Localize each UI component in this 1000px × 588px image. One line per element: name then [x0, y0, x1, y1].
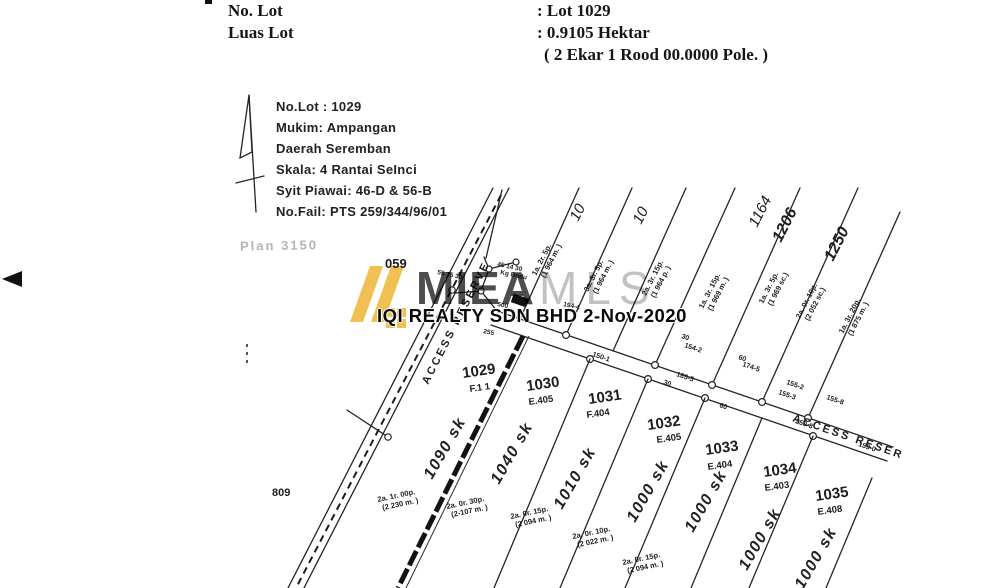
agency-date-stamp: IQI REALTY SDN BHD 2-Nov-2020 — [377, 305, 687, 327]
svg-text:185-5: 185-5 — [675, 371, 694, 383]
svg-text:55 15 30: 55 15 30 — [437, 269, 464, 281]
svg-text:10: 10 — [566, 201, 589, 224]
svg-text:E.408: E.408 — [817, 504, 843, 518]
svg-text:1031: 1031 — [587, 386, 622, 407]
svg-text:F.1 1: F.1 1 — [469, 381, 492, 395]
scanned-land-title-document: No. Lot : Lot 1029 Luas Lot : 0.9105 Hek… — [0, 0, 1000, 588]
svg-text:155-2: 155-2 — [785, 379, 804, 391]
svg-text:155-3: 155-3 — [777, 389, 796, 401]
svg-text:1000 sk: 1000 sk — [792, 524, 841, 588]
svg-text:155-8: 155-8 — [825, 394, 844, 406]
svg-text:1206: 1206 — [769, 205, 800, 245]
svg-text:1250: 1250 — [821, 224, 852, 264]
svg-text:F.404: F.404 — [586, 407, 611, 421]
svg-text:E.405: E.405 — [528, 394, 555, 408]
svg-text:30: 30 — [680, 333, 690, 342]
svg-text:1010 sk: 1010 sk — [551, 444, 600, 512]
svg-text:E.405: E.405 — [656, 432, 683, 446]
svg-text:60: 60 — [718, 402, 728, 411]
speckles — [246, 344, 248, 363]
upper-strip-numbers: 10 10 1164 1206 1250 — [566, 193, 852, 263]
svg-text:150-1: 150-1 — [591, 351, 610, 363]
svg-text:1164: 1164 — [745, 193, 775, 229]
access-reser-label: ACCESS RESER — [791, 412, 905, 461]
svg-text:1034: 1034 — [762, 459, 798, 481]
map-left-label: 809 — [272, 487, 290, 499]
map-corner-label: 059 — [385, 256, 407, 271]
svg-text:Kg Bndu: Kg Bndu — [500, 269, 528, 281]
svg-text:1040 sk: 1040 sk — [488, 419, 537, 487]
left-arrow-marker-icon — [2, 271, 22, 287]
svg-text:1000 sk: 1000 sk — [682, 467, 731, 535]
svg-text:1029: 1029 — [461, 360, 496, 381]
north-arrow-icon — [236, 95, 264, 212]
svg-text:10: 10 — [629, 204, 652, 227]
svg-text:154-2: 154-2 — [683, 342, 702, 354]
svg-text:255: 255 — [483, 328, 495, 337]
svg-text:1032: 1032 — [646, 412, 681, 433]
svg-text:1033: 1033 — [704, 437, 739, 458]
lot-area-annotations: 2a. 1r. 00p.(2 230 m. ) 2a. 0r. 30p.(2-1… — [377, 487, 665, 576]
svg-text:1030: 1030 — [525, 373, 560, 394]
cadastral-map: 059 809 ACCESS RESERVE ACCESS RESER 154-… — [0, 0, 1000, 588]
edge-mark — [205, 0, 212, 4]
svg-text:E.403: E.403 — [764, 480, 790, 494]
svg-text:1035: 1035 — [814, 483, 849, 504]
